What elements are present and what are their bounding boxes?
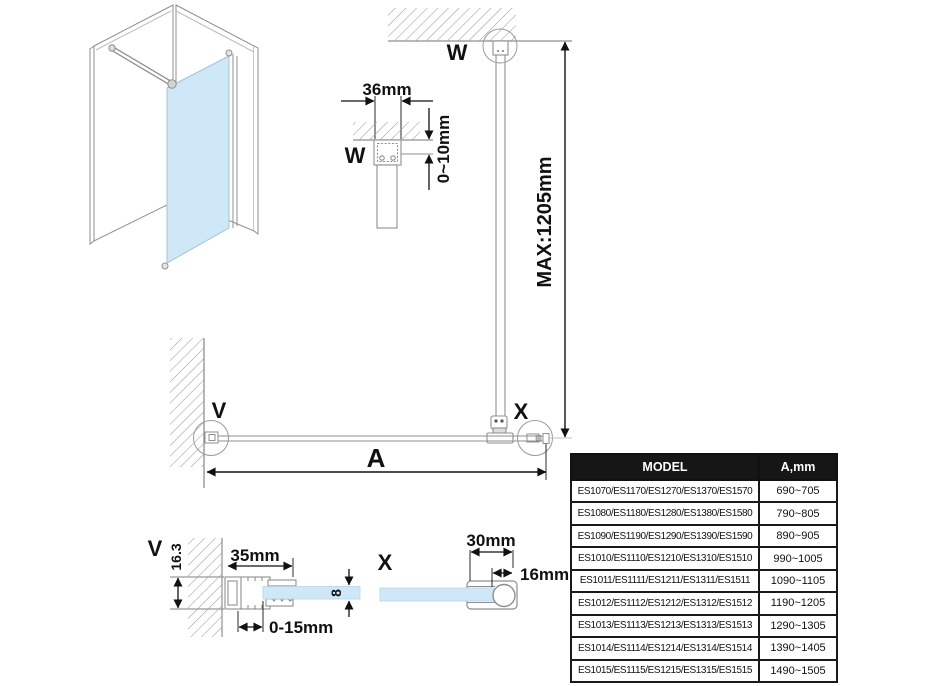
detail-v-label-2: V xyxy=(148,536,163,561)
bar-cross-section xyxy=(493,585,515,607)
dim-0-15mm: 0-15mm xyxy=(269,618,333,637)
model-cell: ES1012/ES1112/ES1212/ES1312/ES1512 xyxy=(571,592,759,614)
support-bar-elevation: W X MAX:1205mm xyxy=(388,8,572,456)
dim-8: 8 xyxy=(328,589,344,597)
spec-table: MODEL A,mm ES1070/ES1170/ES1270/ES1370/E… xyxy=(570,453,838,683)
isometric-view xyxy=(90,5,258,269)
model-cell: ES1014/ES1114/ES1214/ES1314/ES1514 xyxy=(571,637,759,659)
model-cell: ES1080/ES1180/ES1280/ES1380/ES1580 xyxy=(571,502,759,524)
detail-x-section: X 30mm 16mm xyxy=(378,531,569,609)
table-row: ES1070/ES1170/ES1270/ES1370/ES1570690~70… xyxy=(571,480,837,502)
bar-stub xyxy=(377,165,397,228)
table-row: ES1012/ES1112/ES1212/ES1312/ES15121190~1… xyxy=(571,592,837,614)
a-mm-cell: 1290~1305 xyxy=(759,615,837,637)
dim-30mm: 30mm xyxy=(466,531,515,550)
a-mm-cell: 790~805 xyxy=(759,502,837,524)
glass-top-cap xyxy=(226,50,232,56)
model-cell: ES1011/ES1111/ES1211/ES1311/ES1511 xyxy=(571,570,759,592)
shower-panel-installation-diagram: 36mm 0~10mm W W xyxy=(0,0,928,686)
dim-16-3: 16.3 xyxy=(168,543,184,570)
table-row: ES1014/ES1114/ES1214/ES1314/ES15141390~1… xyxy=(571,637,837,659)
detail-x-label-2: X xyxy=(378,550,393,575)
table-row: ES1090/ES1190/ES1290/ES1390/ES1590890~90… xyxy=(571,525,837,547)
a-mm-column-header: A,mm xyxy=(759,454,837,480)
ceiling-hatch xyxy=(353,122,420,140)
a-mm-cell: 690~705 xyxy=(759,480,837,502)
a-mm-cell: 1090~1105 xyxy=(759,570,837,592)
support-bar-body xyxy=(496,41,505,418)
a-mm-cell: 1190~1205 xyxy=(759,592,837,614)
dim-36mm: 36mm xyxy=(362,80,411,99)
spec-table-body: ES1070/ES1170/ES1270/ES1370/ES1570690~70… xyxy=(571,480,837,682)
plan-view: V A xyxy=(170,338,572,488)
a-mm-cell: 1490~1505 xyxy=(759,660,837,683)
table-row: ES1011/ES1111/ES1211/ES1311/ES15111090~1… xyxy=(571,570,837,592)
glass-section-v xyxy=(263,587,360,600)
model-cell: ES1090/ES1190/ES1290/ES1390/ES1590 xyxy=(571,525,759,547)
detail-w-label: W xyxy=(345,143,366,168)
model-cell: ES1015/ES1115/ES1215/ES1315/ES1515 xyxy=(571,660,759,683)
a-mm-cell: 990~1005 xyxy=(759,547,837,569)
table-row: ES1015/ES1115/ES1215/ES1315/ES15151490~1… xyxy=(571,660,837,683)
dim-0-10mm: 0~10mm xyxy=(434,115,453,184)
a-mm-cell: 890~905 xyxy=(759,525,837,547)
detail-v-label: V xyxy=(212,398,227,423)
ceiling-hatch-right xyxy=(388,8,516,41)
table-row: ES1080/ES1180/ES1280/ES1380/ES1580790~80… xyxy=(571,502,837,524)
model-cell: ES1013/ES1113/ES1213/ES1313/ES1513 xyxy=(571,615,759,637)
model-spec-table: MODEL A,mm ES1070/ES1170/ES1270/ES1370/E… xyxy=(570,453,836,683)
glass-section-x xyxy=(380,588,494,601)
ceiling-mount xyxy=(493,41,508,55)
a-mm-cell: 1390~1405 xyxy=(759,637,837,659)
wall-hatch xyxy=(170,338,204,467)
model-cell: ES1010/ES1110/ES1210/ES1310/ES1510 xyxy=(571,547,759,569)
wall-hatch-v xyxy=(188,538,222,637)
dim-max-1205mm: MAX:1205mm xyxy=(534,156,556,287)
table-header-row: MODEL A,mm xyxy=(571,454,837,480)
detail-x-label: X xyxy=(514,399,529,424)
table-row: ES1010/ES1110/ES1210/ES1310/ES1510990~10… xyxy=(571,547,837,569)
model-column-header: MODEL xyxy=(571,454,759,480)
detail-w-section: 36mm 0~10mm W xyxy=(341,80,453,228)
dim-a: A xyxy=(367,443,386,473)
detail-v-section: V 16.3 35mm 8 xyxy=(148,536,360,637)
glass-foot xyxy=(162,263,168,269)
bar-glass-clamp xyxy=(487,416,513,443)
dim-35mm: 35mm xyxy=(230,546,279,565)
dim-16mm: 16mm xyxy=(520,565,569,584)
table-row: ES1013/ES1113/ES1213/ES1313/ES15131290~1… xyxy=(571,615,837,637)
detail-w-label-2: W xyxy=(447,40,468,65)
model-cell: ES1070/ES1170/ES1270/ES1370/ES1570 xyxy=(571,480,759,502)
glass-panel xyxy=(167,56,229,263)
